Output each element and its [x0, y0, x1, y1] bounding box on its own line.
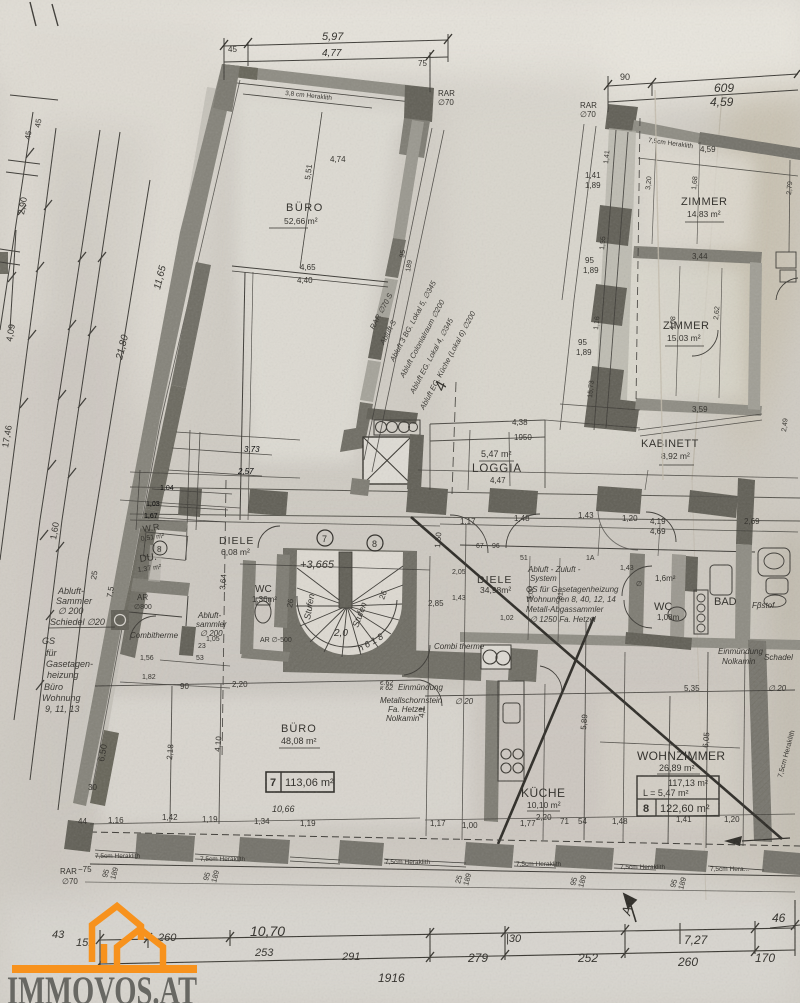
svg-text:IMMOVOS.AT: IMMOVOS.AT [7, 968, 197, 1003]
